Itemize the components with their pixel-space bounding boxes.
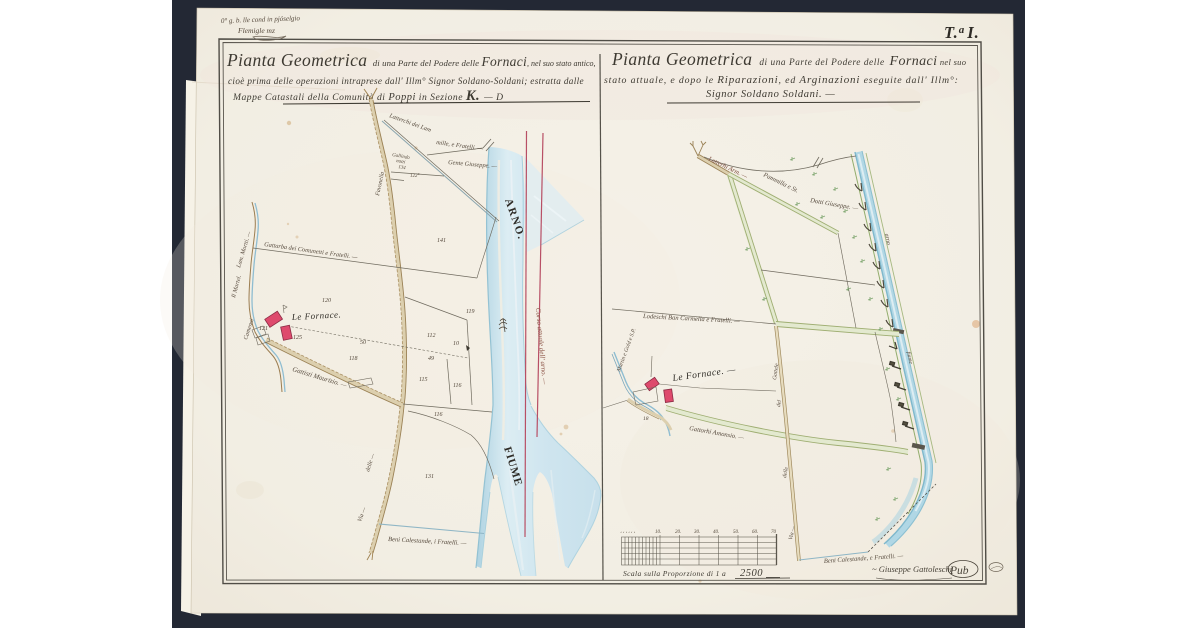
svg-text:60.: 60. (752, 530, 758, 535)
svg-text:49: 49 (428, 355, 434, 362)
svg-text:141: 141 (437, 237, 446, 244)
svg-text:121: 121 (259, 326, 268, 332)
svg-text:40.: 40. (713, 530, 719, 535)
svg-text:50.: 50. (733, 530, 739, 535)
svg-text:30.: 30. (694, 530, 700, 535)
svg-text:~ Giuseppe Gattoleschi: ~ Giuseppe Gattoleschi (872, 564, 953, 574)
svg-text:ʻʻʻʻʻʻ: ʻʻʻʻʻʻ (620, 531, 636, 537)
svg-text:125: 125 (293, 335, 302, 341)
svg-text:70: 70 (771, 530, 777, 535)
svg-text:112: 112 (427, 333, 436, 339)
svg-text:116: 116 (434, 412, 443, 418)
svg-text:50: 50 (360, 340, 366, 346)
svg-text:118: 118 (349, 356, 358, 362)
svg-text:del: del (776, 399, 783, 407)
svg-text:Signor Soldano Soldani. —: Signor Soldano Soldani. — (706, 89, 835, 100)
svg-text:Flemigle mz: Flemigle mz (237, 26, 275, 35)
svg-text:20.: 20. (675, 530, 681, 535)
svg-text:10.: 10. (655, 530, 661, 535)
svg-text:116: 116 (453, 383, 462, 389)
svg-text:10: 10 (453, 341, 459, 347)
svg-text:119: 119 (466, 309, 475, 315)
svg-text:131: 131 (425, 474, 434, 480)
svg-text:120: 120 (322, 298, 331, 304)
svg-text:stato attuale, e dopo le Ripar: stato attuale, e dopo le Riparazioni, ed… (604, 74, 959, 86)
svg-text:115: 115 (419, 377, 428, 383)
svg-text:cioè prima delle operazioni in: cioè prima delle operazioni intraprese d… (228, 76, 584, 86)
svg-text:122°: 122° (410, 174, 420, 179)
svg-text:18: 18 (643, 416, 649, 422)
svg-text:2500: 2500 (740, 568, 763, 579)
svg-text:Scala sulla Proporzione di 1 a: Scala sulla Proporzione di 1 a (623, 569, 726, 578)
